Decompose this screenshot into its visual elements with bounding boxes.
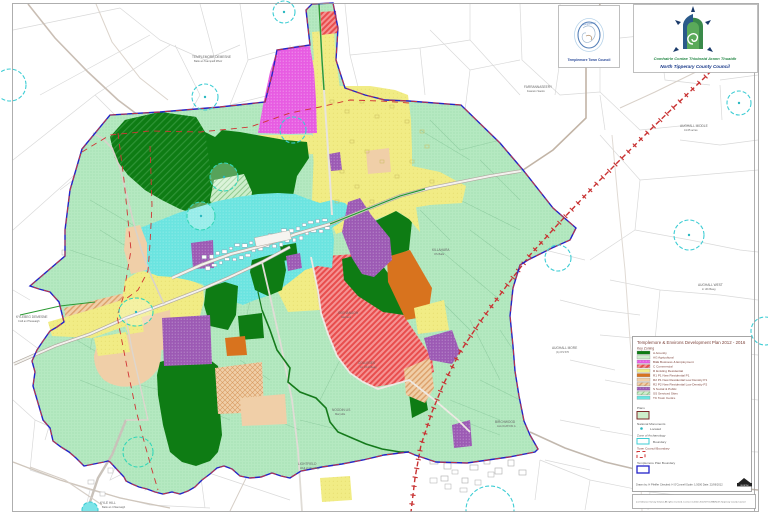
svg-text:B&E Business & Employment: B&E Business & Employment bbox=[653, 360, 694, 364]
svg-text:41.05 acres: 41.05 acres bbox=[684, 128, 698, 132]
svg-text:ALLOCATION A: ALLOCATION A bbox=[497, 424, 516, 428]
svg-text:S Social & Public: S Social & Public bbox=[653, 387, 677, 391]
svg-text:KILLAHARA: KILLAHARA bbox=[432, 248, 450, 252]
svg-text:An Choil Beag: An Choil Beag bbox=[360, 365, 377, 369]
svg-text:Baile an Teampaill Mhoir: Baile an Teampaill Mhoir bbox=[194, 59, 222, 63]
svg-text:R2 P2 New Residential Low De: R2 P2 New Residential Low Density P2 bbox=[653, 383, 707, 387]
svg-text:Boundary: Boundary bbox=[653, 440, 667, 444]
svg-text:R1 P1 New Residential P1: R1 P1 New Residential P1 bbox=[653, 374, 690, 378]
svg-text:Coill an Pheasaigh: Coill an Pheasaigh bbox=[18, 319, 40, 323]
svg-text:Templemore Town Council: Templemore Town Council bbox=[568, 58, 611, 62]
svg-text:Comhairle Contae Thiobraid Ara: Comhairle Contae Thiobraid Arann Thuaidh bbox=[654, 56, 737, 61]
svg-text:Well of Monologh: Well of Monologh bbox=[300, 466, 321, 470]
svg-text:SS Serviced Sites: SS Serviced Sites bbox=[653, 392, 678, 396]
svg-text:Key Zoning: Key Zoning bbox=[637, 347, 654, 351]
svg-text:National Monuments: National Monuments bbox=[637, 422, 666, 426]
svg-text:Zone of Archaeology: Zone of Archaeology bbox=[637, 434, 666, 438]
svg-text:KYLEBEG DEMESNE: KYLEBEG DEMESNE bbox=[16, 315, 48, 319]
svg-text:AG Agricultural: AG Agricultural bbox=[653, 356, 674, 360]
svg-text:BIRCHWOOD: BIRCHWOOD bbox=[495, 420, 516, 424]
svg-text:Town Council Boundary: Town Council Boundary bbox=[637, 447, 670, 451]
svg-text:Maryville: Maryville bbox=[335, 412, 346, 416]
svg-text:AUGHALL MORE: AUGHALL MORE bbox=[552, 346, 577, 350]
svg-text:FARRANNASEERY: FARRANNASEERY bbox=[524, 85, 553, 89]
svg-text:TEMPLEMORE DEMESNE: TEMPLEMORE DEMESNE bbox=[192, 55, 231, 59]
svg-text:in Uib Beag: in Uib Beag bbox=[702, 287, 716, 291]
svg-text:Baile an Chlaonaigh: Baile an Chlaonaigh bbox=[102, 505, 126, 509]
svg-text:OS Baile: OS Baile bbox=[434, 252, 445, 256]
svg-text:NOODIN LIS: NOODIN LIS bbox=[332, 408, 350, 412]
svg-text:North Tipperary County Council: North Tipperary County Council bbox=[660, 64, 730, 69]
svg-text:COLLEGES: COLLEGES bbox=[358, 361, 375, 365]
svg-text:Skehana: Skehana bbox=[341, 315, 352, 319]
svg-text:Plans: Plans bbox=[637, 406, 645, 410]
svg-text:R2 P1 New Residential Low De: R2 P1 New Residential Low Density P1 bbox=[653, 378, 707, 382]
svg-text:Templemore & Environs Developm: Templemore & Environs Development Plan 2… bbox=[637, 340, 746, 345]
svg-text:(c) Ordnance Survey Ireland. A: (c) Ordnance Survey Ireland. All rights … bbox=[636, 501, 746, 504]
svg-text:Drawn by: H Pfeiffer Checked: Drawn by: H Pfeiffer Checked: H O'Connel… bbox=[636, 483, 723, 487]
svg-text:LIGHTFIELD: LIGHTFIELD bbox=[298, 462, 317, 466]
svg-text:R Existing Residential: R Existing Residential bbox=[653, 369, 683, 373]
svg-text:TC Town Centre: TC Town Centre bbox=[653, 396, 676, 400]
svg-text:A Amenity: A Amenity bbox=[653, 351, 667, 355]
svg-text:SKEHANAGH: SKEHANAGH bbox=[338, 311, 359, 315]
svg-text:AUGHALL WEST: AUGHALL WEST bbox=[698, 283, 723, 287]
svg-text:AUGHALL MIDDLE: AUGHALL MIDDLE bbox=[680, 124, 708, 128]
svg-text:Located: Located bbox=[650, 427, 661, 431]
svg-text:(A) OS 570: (A) OS 570 bbox=[556, 350, 570, 354]
svg-text:NORTH: NORTH bbox=[741, 485, 749, 487]
svg-text:C Commercial: C Commercial bbox=[653, 365, 673, 369]
svg-text:Fearann Saoire: Fearann Saoire bbox=[527, 89, 545, 93]
svg-text:Templemore Plan Boundary: Templemore Plan Boundary bbox=[637, 461, 676, 465]
svg-text:KYLE HILL: KYLE HILL bbox=[100, 501, 116, 505]
